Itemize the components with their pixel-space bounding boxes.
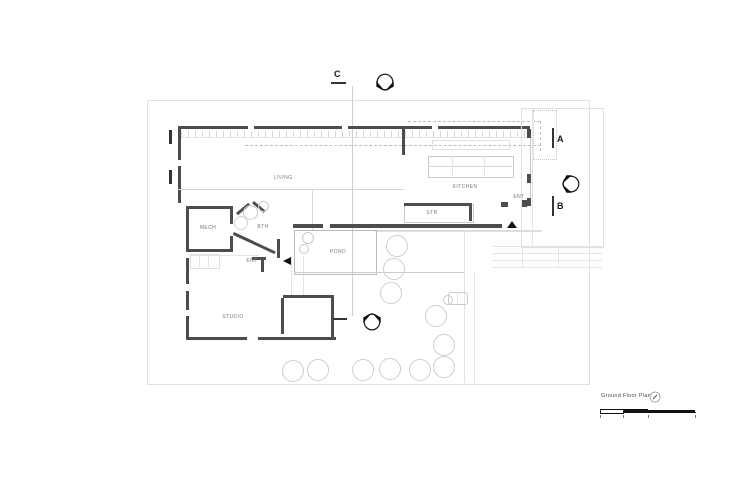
tree xyxy=(409,359,431,381)
mech-wall xyxy=(186,206,189,252)
room-label-studio: STUDIO xyxy=(222,314,243,320)
entry-arrow-icon xyxy=(283,257,291,265)
section-symbol-up-icon xyxy=(361,311,383,333)
south-wall-segment xyxy=(330,224,502,228)
porch-step-line xyxy=(492,267,602,268)
door-swing-arc xyxy=(234,216,248,230)
room-label-entry-east: ENT xyxy=(513,194,524,200)
stair-wall xyxy=(404,203,472,206)
kitchen-counter xyxy=(432,140,510,150)
studio-wall xyxy=(186,316,189,338)
studio-wall xyxy=(186,291,189,310)
south-wall-segment xyxy=(293,224,323,228)
room-label-kitchen: KITCHEN xyxy=(453,184,478,190)
tree xyxy=(433,334,455,356)
north-wall-segment xyxy=(348,126,432,129)
floor-plan-sheet: LIVING KITCHEN STR MECH BTH ENT ENT POND… xyxy=(0,0,750,485)
section-tick-a xyxy=(552,128,554,148)
scale-bar-tick xyxy=(648,415,649,418)
tree xyxy=(383,258,405,280)
path-line xyxy=(464,230,465,383)
section-letter-c: C xyxy=(334,69,341,79)
studio-wall xyxy=(186,258,189,284)
kitchen-island-line xyxy=(428,166,512,167)
scale-bar-segment xyxy=(623,409,648,413)
porch-step-line xyxy=(492,260,602,261)
room-label-stair: STR xyxy=(426,210,437,216)
tree xyxy=(386,235,408,257)
kitchen-island-line xyxy=(484,156,485,176)
mech-wall xyxy=(230,206,233,224)
studio-wall xyxy=(186,337,247,340)
scale-bar-tick xyxy=(623,415,624,418)
tree xyxy=(282,360,304,382)
entry-path-line xyxy=(291,256,292,298)
title-north-icon xyxy=(649,390,661,402)
room-label-mech: MECH xyxy=(200,225,216,231)
north-wall-segment xyxy=(178,126,248,129)
room-label-living: LIVING xyxy=(274,175,293,181)
porch-step-line xyxy=(492,246,602,247)
pond-stone xyxy=(302,232,314,244)
porch-step-line xyxy=(522,246,523,268)
scale-bar-tick xyxy=(695,415,696,418)
deck-edge-line xyxy=(294,272,464,273)
porch-step-line xyxy=(492,253,602,254)
scale-bar-segment xyxy=(600,409,624,414)
studio-wall xyxy=(258,337,336,340)
interior-wall xyxy=(402,129,405,155)
scale-bar-segment xyxy=(648,410,695,413)
utility-fixture xyxy=(190,254,220,269)
tree xyxy=(379,358,401,380)
bath-fixture xyxy=(258,201,269,212)
outdoor-equipment-line xyxy=(457,292,458,303)
kitchen-island-line xyxy=(452,156,453,176)
section-symbol-left-icon xyxy=(560,173,582,195)
living-ceiling-line xyxy=(178,189,404,190)
east-entry-door-jamb xyxy=(501,202,508,207)
tree xyxy=(425,305,447,327)
west-wall-segment xyxy=(178,166,181,203)
room-label-entry-west: ENT xyxy=(246,258,257,264)
section-symbol-down-icon xyxy=(374,71,396,93)
tree xyxy=(352,359,374,381)
section-tick-b xyxy=(552,196,554,216)
entry-wall xyxy=(277,239,280,258)
drawing-title: Ground Floor Plan xyxy=(601,393,651,399)
room-label-bath: BTH xyxy=(257,224,268,230)
mech-wall xyxy=(186,206,233,209)
stair-outline xyxy=(404,204,474,223)
exterior-step-line xyxy=(375,230,542,232)
pond-stone xyxy=(299,244,309,254)
studio-closet-wall xyxy=(281,298,284,334)
section-letter-b: B xyxy=(557,201,564,211)
porch-inner-line xyxy=(532,109,533,245)
section-letter-c-underline xyxy=(331,82,346,84)
studio-entry-wall xyxy=(261,260,264,272)
mech-wall xyxy=(186,249,233,252)
north-wall-segment xyxy=(254,126,342,129)
tree xyxy=(433,356,455,378)
north-wall-segment xyxy=(438,126,530,129)
window-dimension-tick xyxy=(169,130,172,144)
window-mullion-strip xyxy=(181,131,527,138)
window-dimension-tick xyxy=(169,170,172,184)
outdoor-equipment-wheel xyxy=(443,295,453,305)
section-line-c-end xyxy=(333,318,347,320)
section-line-c xyxy=(352,86,353,316)
studio-closet-wall xyxy=(283,295,334,298)
studio-top-line xyxy=(189,255,259,256)
scale-bar-tick xyxy=(600,415,601,418)
path-line xyxy=(474,272,475,383)
kitchen-island xyxy=(428,156,514,178)
tree xyxy=(380,282,402,304)
tree xyxy=(307,359,329,381)
west-wall-segment xyxy=(178,126,181,160)
stair-wall xyxy=(469,203,472,221)
section-letter-a: A xyxy=(557,134,564,144)
porch-step-line xyxy=(558,246,559,268)
entry-arrow-icon xyxy=(507,221,517,228)
room-label-pond: POND xyxy=(330,249,346,255)
